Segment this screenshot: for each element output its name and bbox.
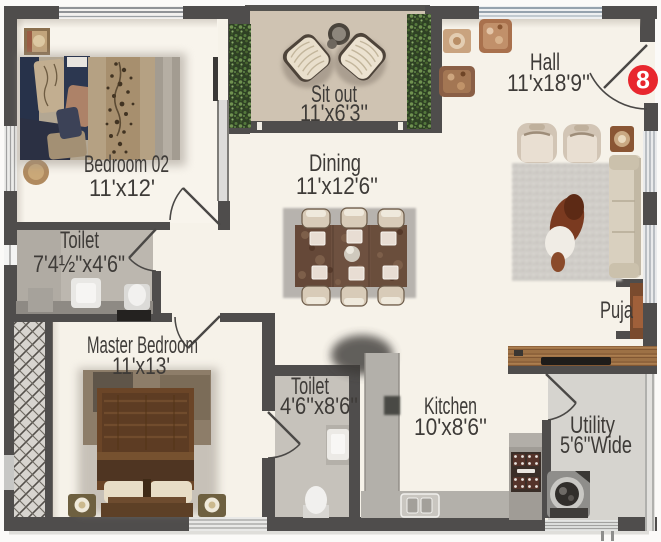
svg-text:Bedroom 02: Bedroom 02 bbox=[84, 151, 169, 178]
svg-text:8: 8 bbox=[636, 67, 650, 95]
svg-text:Toilet: Toilet bbox=[60, 227, 99, 254]
svg-text:11'x18'9'': 11'x18'9'' bbox=[507, 70, 590, 97]
svg-text:10'x8'6'': 10'x8'6'' bbox=[414, 414, 487, 441]
svg-text:5'6''Wide: 5'6''Wide bbox=[560, 432, 632, 459]
svg-text:4'6''x8'6'': 4'6''x8'6'' bbox=[280, 393, 358, 420]
svg-text:Puja: Puja bbox=[600, 297, 633, 324]
svg-text:11'x13': 11'x13' bbox=[112, 353, 170, 380]
svg-text:11'x12'6'': 11'x12'6'' bbox=[296, 173, 378, 200]
svg-text:11'x6'3'': 11'x6'3'' bbox=[300, 100, 368, 127]
svg-text:11'x12': 11'x12' bbox=[89, 175, 155, 202]
svg-text:7'4½"x4'6": 7'4½"x4'6" bbox=[33, 251, 125, 278]
